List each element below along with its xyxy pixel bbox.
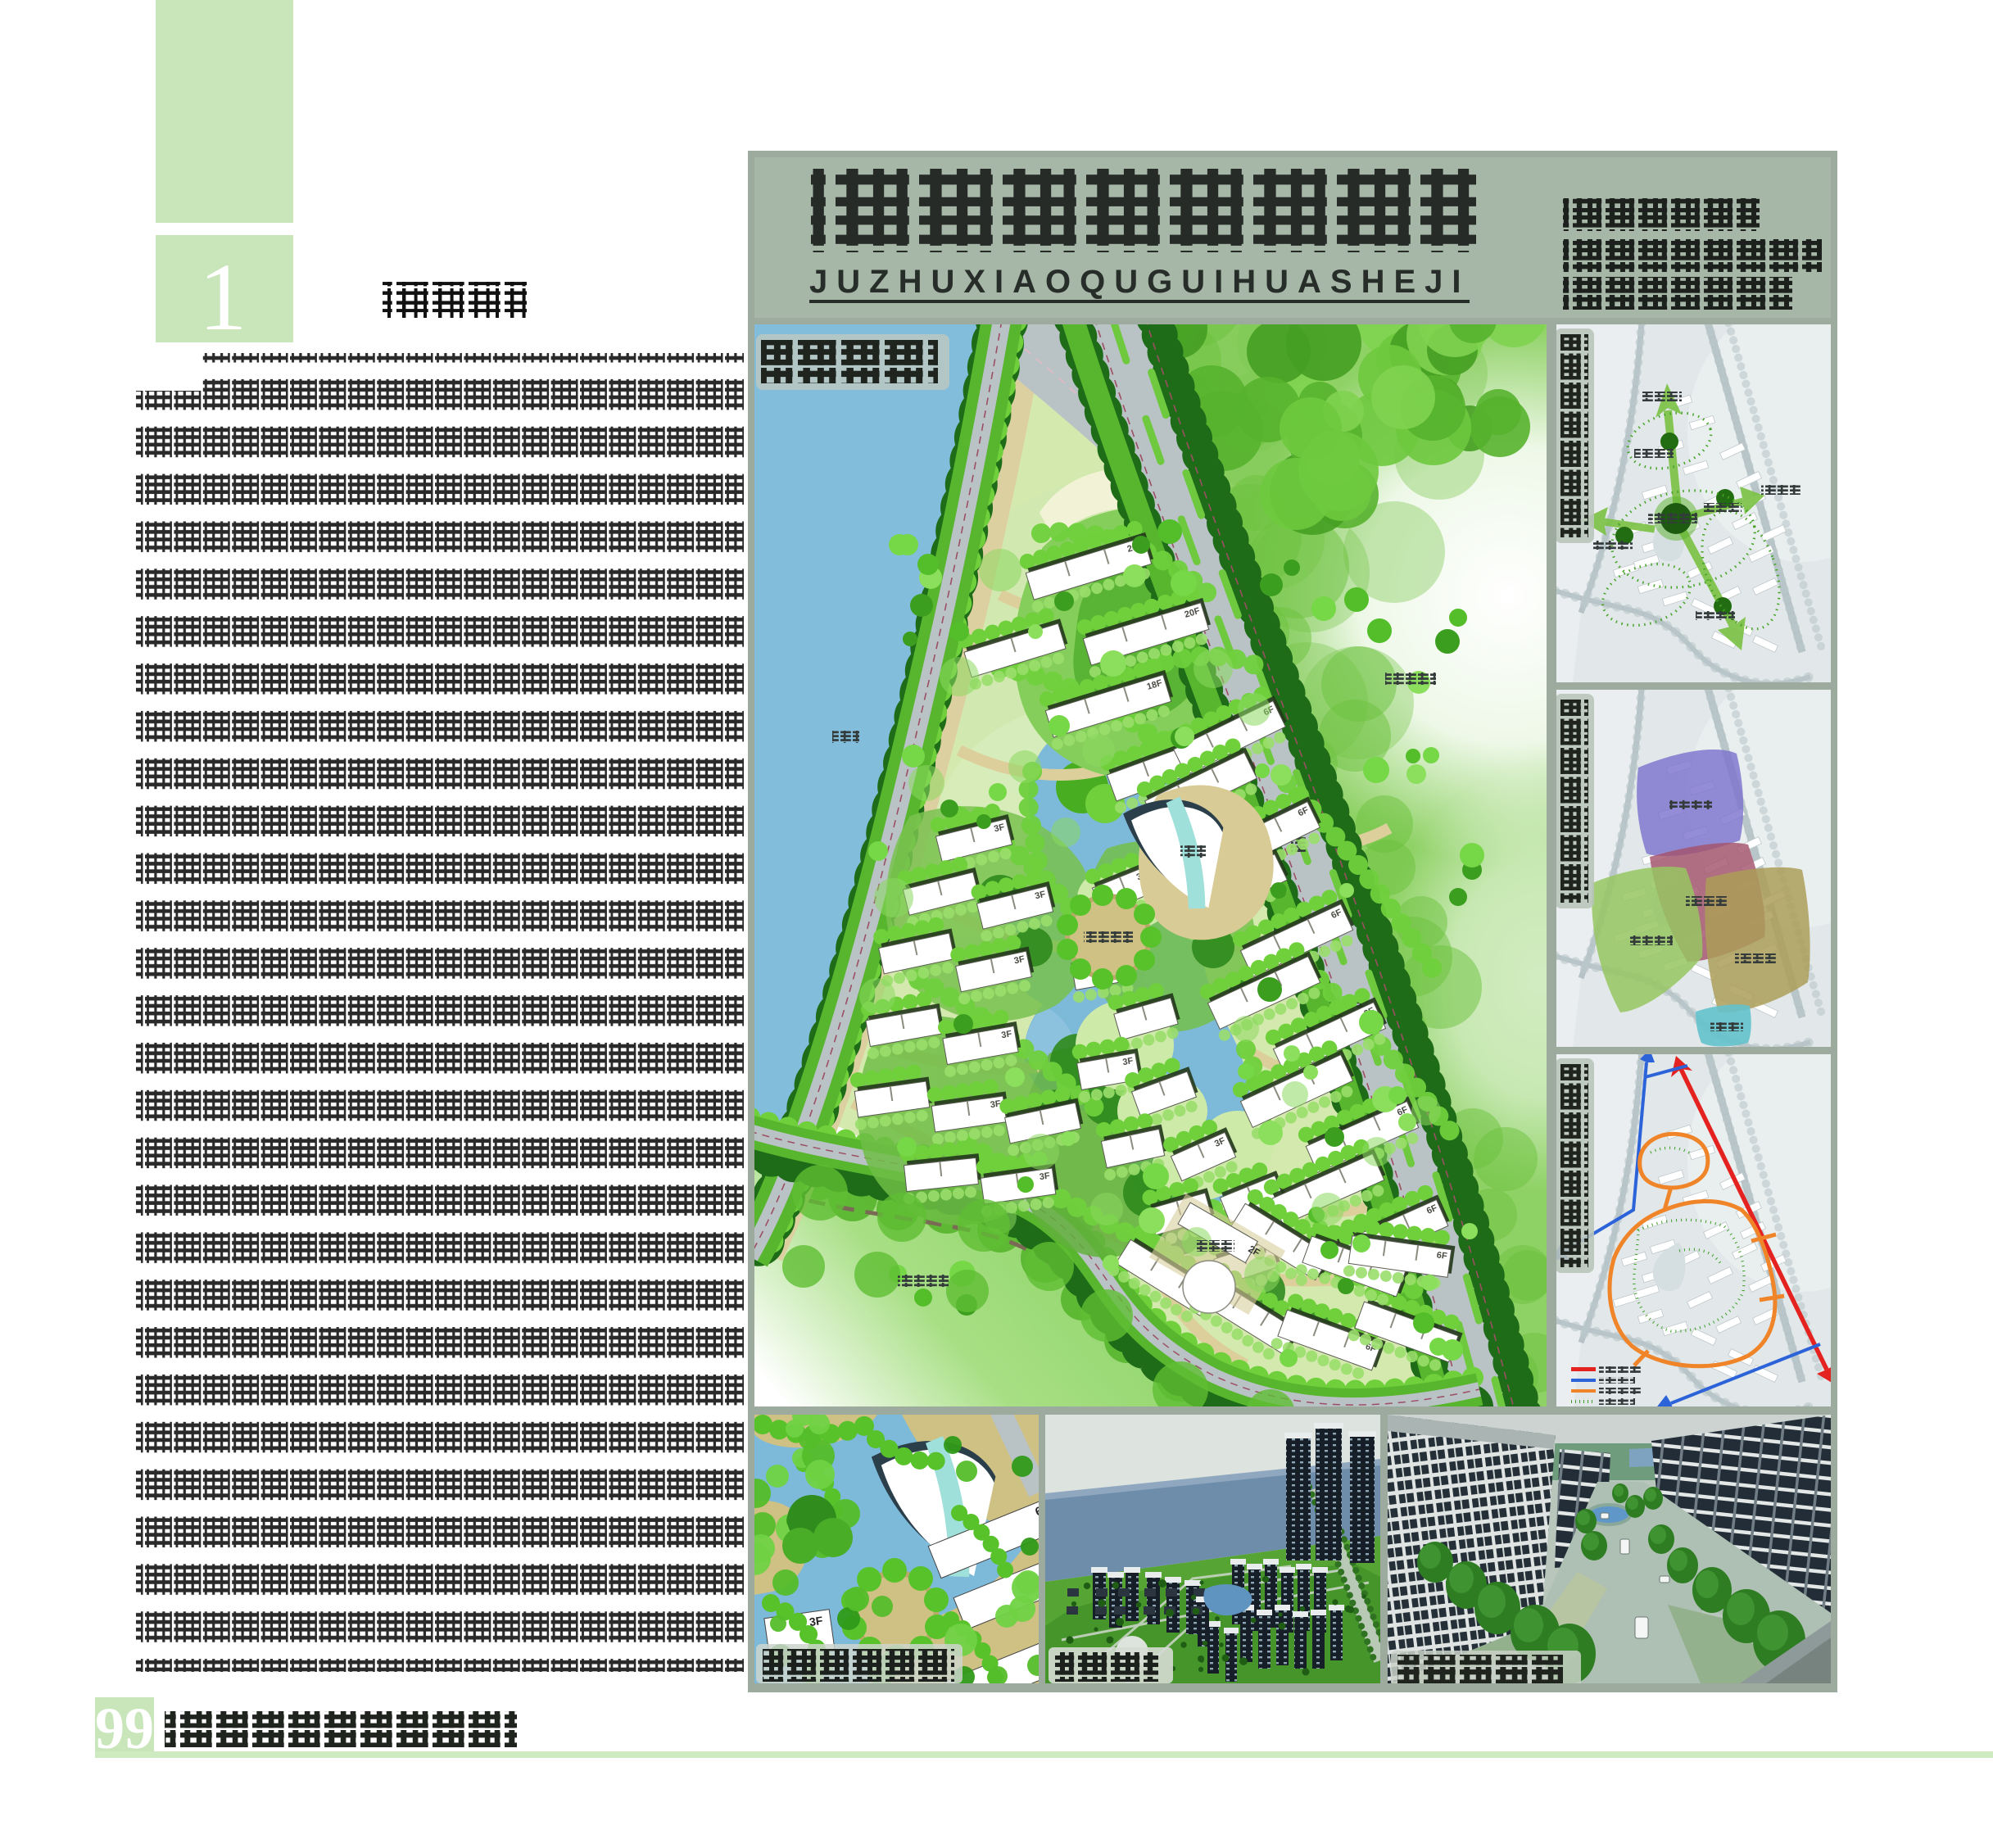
svg-text:6F: 6F xyxy=(1436,1250,1448,1261)
svg-text:3F: 3F xyxy=(990,1099,1002,1111)
svg-text:1: 1 xyxy=(199,243,247,351)
svg-text:JUZHUXIAOQUGUIHUASHEJI: JUZHUXIAOQUGUIHUASHEJI xyxy=(809,264,1470,300)
svg-text:3F: 3F xyxy=(1122,1056,1135,1067)
svg-text:3F: 3F xyxy=(1000,1029,1012,1040)
svg-text:3F: 3F xyxy=(1039,1171,1051,1183)
